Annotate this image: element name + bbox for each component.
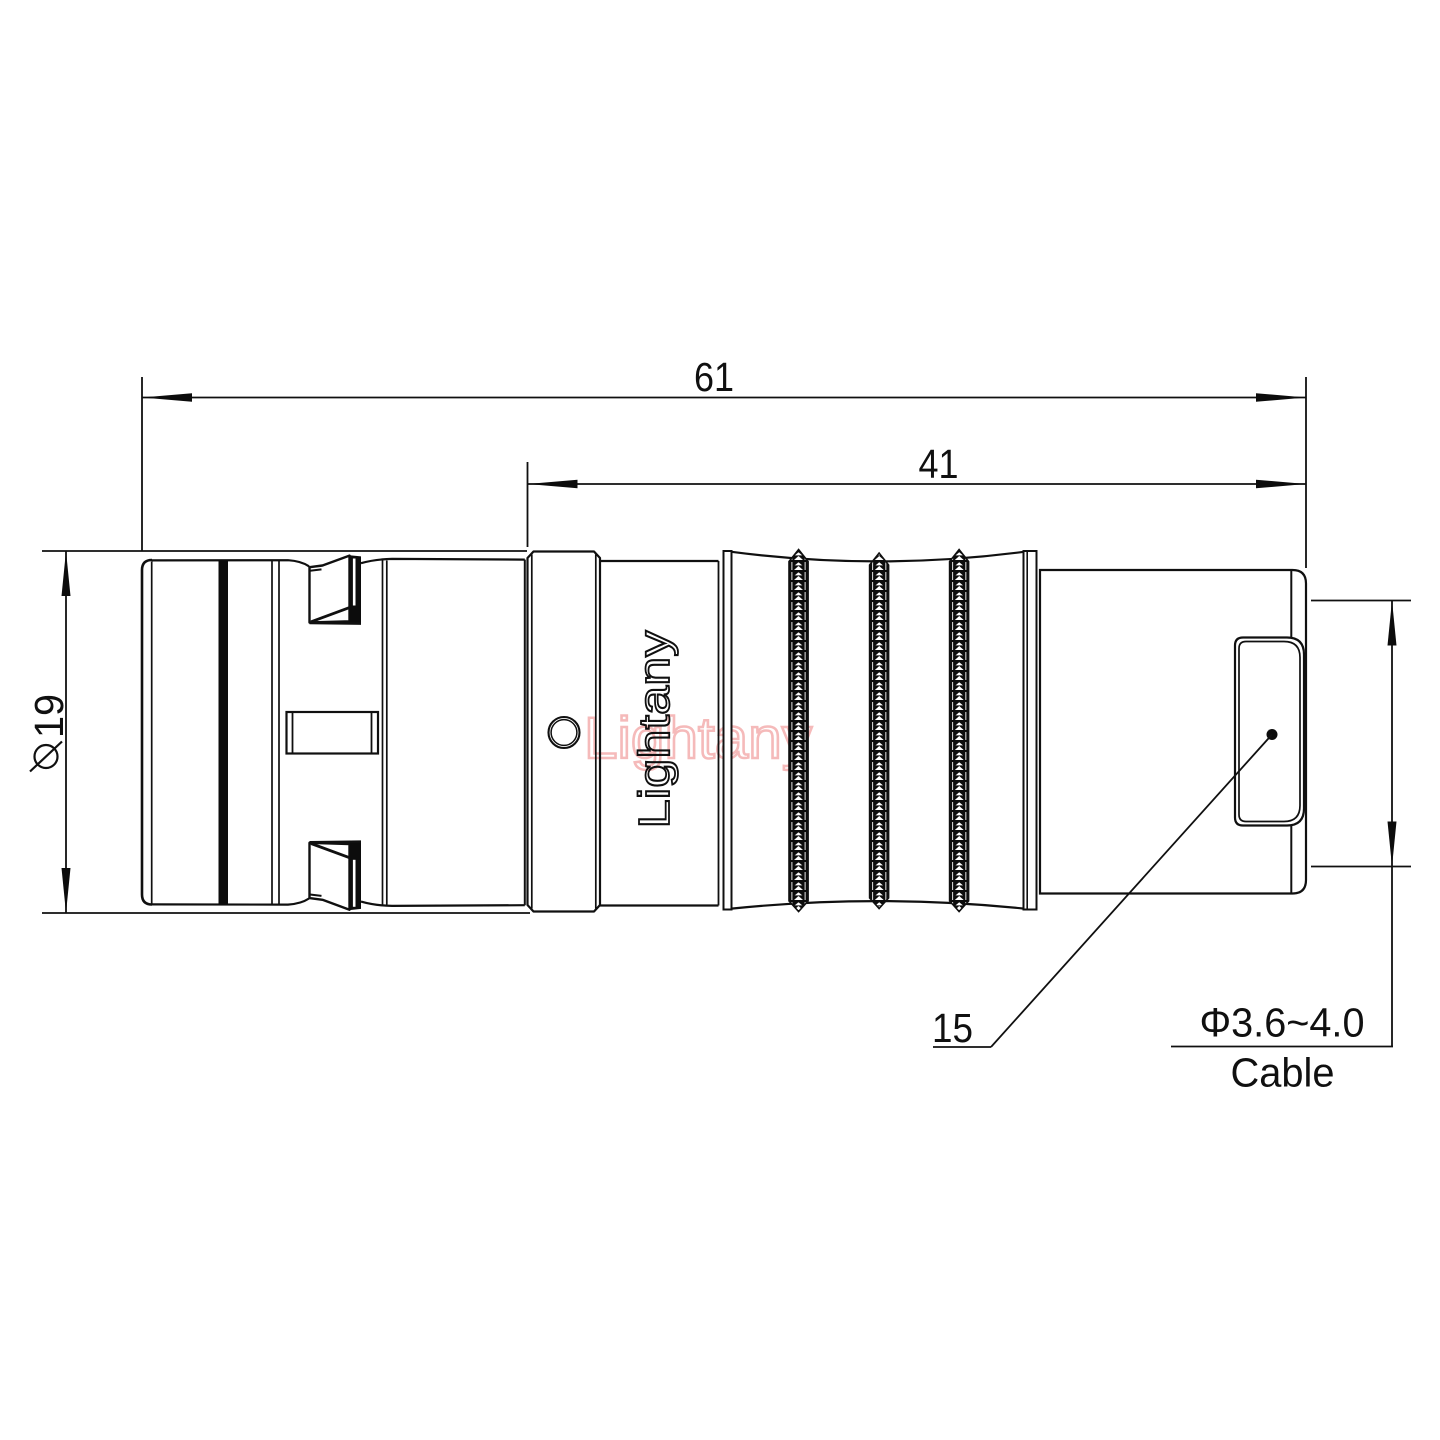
- svg-text:Φ3.6~4.0: Φ3.6~4.0: [1200, 1000, 1365, 1046]
- svg-text:Lightany: Lightany: [630, 631, 679, 829]
- svg-text:15: 15: [932, 1005, 973, 1051]
- svg-text:Cable: Cable: [1231, 1050, 1335, 1096]
- svg-text:61: 61: [694, 354, 734, 400]
- svg-text:19: 19: [26, 694, 72, 738]
- svg-text:41: 41: [919, 441, 959, 487]
- svg-text:Lightany: Lightany: [584, 706, 812, 771]
